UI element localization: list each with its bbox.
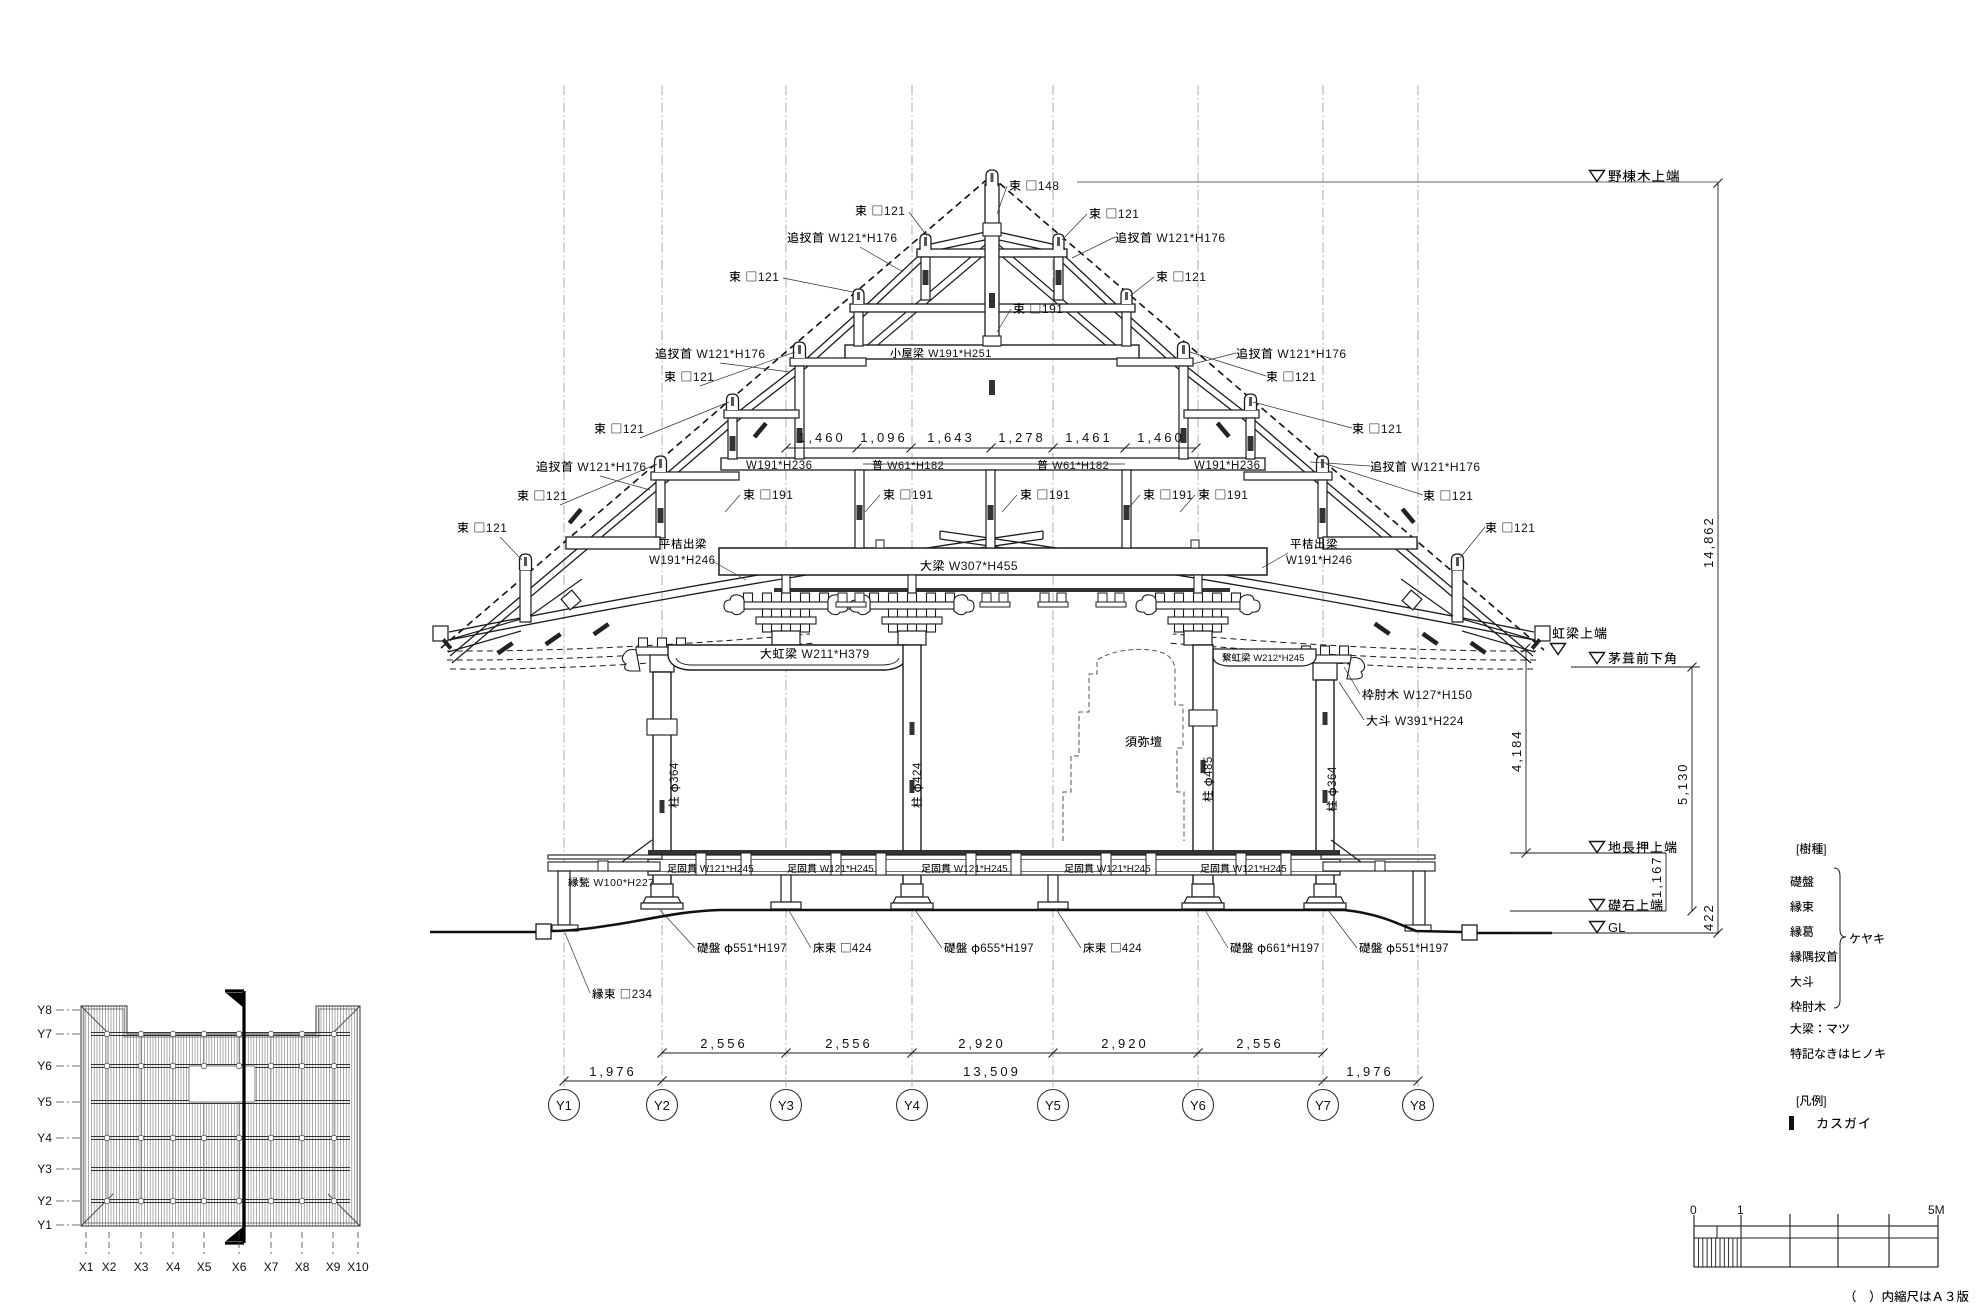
svg-text:Y1: Y1 — [556, 1098, 572, 1113]
svg-text:Y2: Y2 — [37, 1194, 52, 1208]
svg-text:121: 121 — [546, 489, 568, 503]
svg-text:14,862: 14,862 — [1701, 516, 1716, 568]
svg-text:X3: X3 — [134, 1260, 149, 1274]
svg-text:0: 0 — [1690, 1203, 1697, 1217]
svg-text:655*H197: 655*H197 — [980, 943, 1034, 955]
svg-text:191: 191 — [1049, 488, 1071, 502]
svg-text:121: 121 — [1295, 370, 1317, 384]
svg-text:W191*H246: W191*H246 — [1286, 555, 1353, 567]
svg-text:W191*H236: W191*H236 — [746, 460, 813, 472]
svg-text:Y8: Y8 — [37, 1003, 52, 1017]
svg-text:W121*H245: W121*H245 — [954, 864, 1008, 875]
svg-text:1,278: 1,278 — [998, 430, 1046, 445]
svg-text:W121*H245: W121*H245 — [1097, 864, 1151, 875]
svg-text:121: 121 — [486, 521, 508, 535]
svg-text:191: 191 — [1227, 488, 1249, 502]
svg-text:191: 191 — [912, 488, 934, 502]
svg-text:364: 364 — [1327, 766, 1339, 787]
svg-text:1,167: 1,167 — [1649, 855, 1664, 898]
svg-text:W121*H176: W121*H176 — [1277, 347, 1346, 361]
svg-text:W121*H176: W121*H176 — [577, 460, 646, 474]
svg-text:W121*H176: W121*H176 — [696, 347, 765, 361]
svg-text:1,460: 1,460 — [798, 430, 846, 445]
svg-text:551*H197: 551*H197 — [733, 943, 787, 955]
svg-text:Y5: Y5 — [1045, 1098, 1061, 1113]
svg-text:Y8: Y8 — [1410, 1098, 1426, 1113]
svg-text:Y7: Y7 — [1315, 1098, 1331, 1113]
svg-text:W191*H236: W191*H236 — [1194, 460, 1261, 472]
svg-text:661*H197: 661*H197 — [1266, 943, 1320, 955]
svg-text:W61*H182: W61*H182 — [1052, 460, 1109, 472]
svg-text:X5: X5 — [197, 1260, 212, 1274]
svg-text:Y5: Y5 — [37, 1095, 52, 1109]
svg-text:422: 422 — [1701, 903, 1716, 931]
svg-text:424: 424 — [912, 762, 924, 783]
svg-text:Y3: Y3 — [778, 1098, 794, 1113]
svg-text:191: 191 — [1042, 302, 1064, 316]
svg-text:W121*H245: W121*H245 — [700, 864, 754, 875]
svg-text:1,976: 1,976 — [1346, 1064, 1394, 1079]
svg-text:W212*H245: W212*H245 — [1253, 653, 1304, 664]
svg-text:1,460: 1,460 — [1137, 430, 1185, 445]
svg-text:2,556: 2,556 — [1236, 1036, 1284, 1051]
svg-text:1,643: 1,643 — [927, 430, 975, 445]
svg-text:Y6: Y6 — [1190, 1098, 1206, 1113]
svg-text:X9: X9 — [326, 1260, 341, 1274]
svg-text:121: 121 — [1514, 521, 1536, 535]
svg-text:2,556: 2,556 — [825, 1036, 873, 1051]
svg-text:121: 121 — [1381, 422, 1403, 436]
svg-text:234: 234 — [632, 989, 653, 1001]
svg-text:]: ] — [1823, 842, 1826, 856]
svg-text:1,096: 1,096 — [860, 430, 908, 445]
svg-text:X8: X8 — [295, 1260, 310, 1274]
svg-text:1,461: 1,461 — [1065, 430, 1113, 445]
svg-text:191: 191 — [772, 488, 794, 502]
svg-text:Y7: Y7 — [37, 1027, 52, 1041]
svg-text:148: 148 — [1038, 179, 1060, 193]
svg-text:2,556: 2,556 — [700, 1036, 748, 1051]
svg-text:X10: X10 — [347, 1260, 369, 1274]
svg-text:121: 121 — [1185, 270, 1207, 284]
svg-text:4,184: 4,184 — [1509, 729, 1524, 772]
svg-text:1: 1 — [1737, 1203, 1744, 1217]
svg-text:121: 121 — [1452, 489, 1474, 503]
svg-text:W127*H150: W127*H150 — [1403, 688, 1472, 702]
svg-text:W121*H176: W121*H176 — [828, 231, 897, 245]
svg-text:W121*H176: W121*H176 — [1411, 460, 1480, 474]
svg-text:W191*H246: W191*H246 — [649, 555, 716, 567]
svg-text:X1: X1 — [79, 1260, 94, 1274]
svg-text:Y4: Y4 — [904, 1098, 920, 1113]
svg-text:Y1: Y1 — [37, 1218, 52, 1232]
svg-text:5M: 5M — [1928, 1203, 1945, 1217]
svg-text:485: 485 — [1203, 756, 1215, 777]
svg-text:191: 191 — [1172, 488, 1194, 502]
svg-text:13,509: 13,509 — [963, 1064, 1021, 1079]
svg-text:Y4: Y4 — [37, 1131, 52, 1145]
svg-text:121: 121 — [623, 422, 645, 436]
svg-text:Y6: Y6 — [37, 1059, 52, 1073]
svg-text:W61*H182: W61*H182 — [887, 460, 944, 472]
svg-text:W191*H251: W191*H251 — [928, 348, 992, 360]
svg-text:Y2: Y2 — [654, 1098, 670, 1113]
svg-text:Y3: Y3 — [37, 1162, 52, 1176]
svg-text:W121*H245: W121*H245 — [1233, 864, 1287, 875]
svg-text:121: 121 — [884, 204, 906, 218]
svg-text:121: 121 — [1118, 207, 1140, 221]
svg-text:551*H197: 551*H197 — [1395, 943, 1449, 955]
svg-text:W211*H379: W211*H379 — [801, 647, 869, 661]
svg-text:121: 121 — [758, 270, 780, 284]
svg-text:]: ] — [1823, 1094, 1826, 1108]
svg-text:W391*H224: W391*H224 — [1395, 714, 1464, 728]
svg-text:X2: X2 — [102, 1260, 117, 1274]
svg-text:2,920: 2,920 — [1101, 1036, 1149, 1051]
svg-text:424: 424 — [1122, 943, 1142, 955]
svg-text:424: 424 — [852, 943, 872, 955]
svg-text:2,920: 2,920 — [958, 1036, 1006, 1051]
svg-text:X6: X6 — [232, 1260, 247, 1274]
svg-text:X7: X7 — [264, 1260, 279, 1274]
svg-text:W121*H176: W121*H176 — [1156, 231, 1225, 245]
svg-text:X4: X4 — [166, 1260, 181, 1274]
svg-text:364: 364 — [669, 762, 681, 783]
svg-text:5,130: 5,130 — [1675, 762, 1690, 805]
svg-text:W307*H455: W307*H455 — [949, 559, 1018, 573]
svg-text:1,976: 1,976 — [589, 1064, 637, 1079]
svg-text:W121*H245: W121*H245 — [820, 864, 874, 875]
svg-text:W100*H227: W100*H227 — [593, 877, 654, 889]
